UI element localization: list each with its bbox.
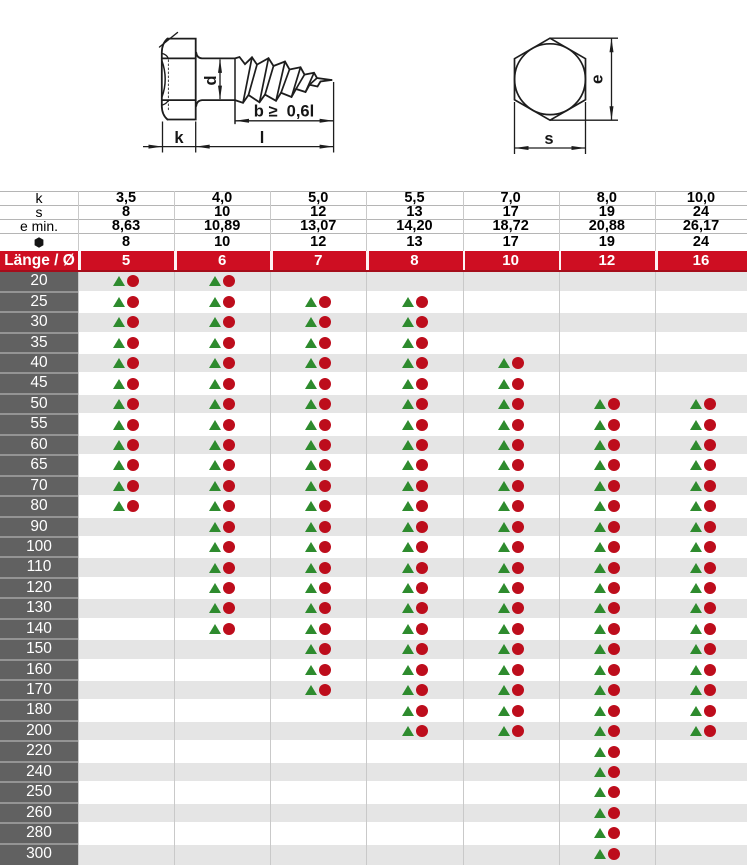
svg-text:k: k [174, 129, 184, 147]
svg-text:s: s [544, 130, 553, 148]
svg-text:e: e [588, 75, 607, 84]
svg-text:l: l [260, 129, 265, 147]
svg-text:d: d [202, 75, 220, 85]
svg-text:b ≥ 0,6l: b ≥ 0,6l [254, 103, 314, 121]
